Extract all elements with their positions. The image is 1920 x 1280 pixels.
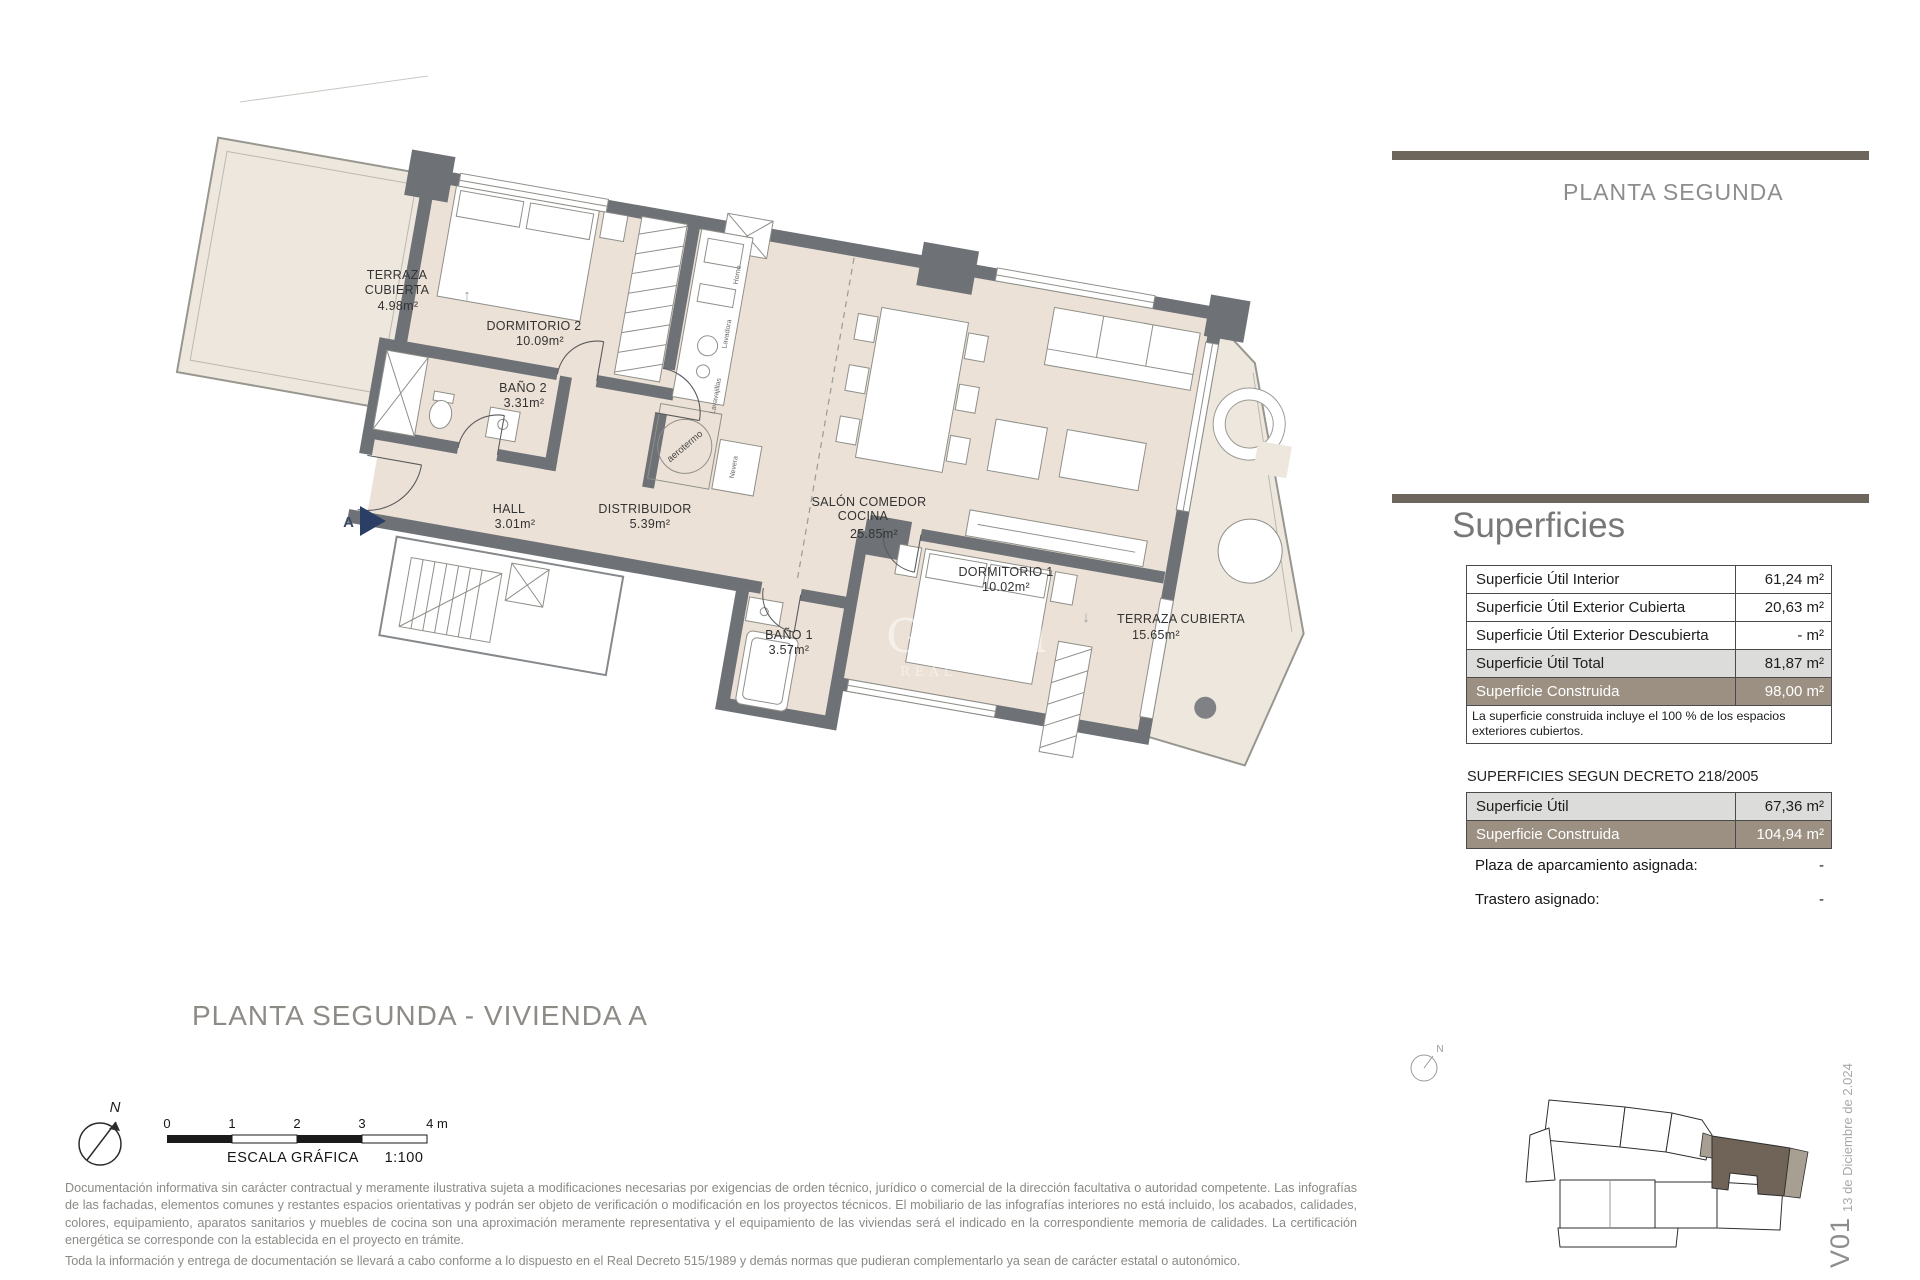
- row-value: 61,24 m²: [1735, 566, 1831, 593]
- room-label-hall: HALL: [493, 502, 525, 516]
- row-value: - m²: [1735, 622, 1831, 649]
- table-row: Superficie Construida 104,94 m²: [1467, 821, 1831, 848]
- plan-title: PLANTA SEGUNDA - VIVIENDA A: [192, 1000, 648, 1032]
- scale-tick-4: 4 m: [426, 1116, 448, 1131]
- scale-tick-2: 2: [293, 1116, 300, 1131]
- table-row-construida: Superficie Construida 98,00 m²: [1467, 678, 1831, 706]
- table-row-total: Superficie Útil Total 81,87 m²: [1467, 650, 1831, 678]
- assignment-label: Trastero asignado:: [1466, 891, 1819, 908]
- room-area-distribuidor: 5.39m²: [630, 517, 671, 531]
- table-note: La superficie construida incluye el 100 …: [1467, 706, 1831, 743]
- scale-bar: 0 1 2 3 4 m ESCALA GRÁFICA 1:100: [163, 1116, 447, 1166]
- superficies-table: Superficie Útil Interior 61,24 m² Superf…: [1466, 565, 1832, 744]
- superficies-rule: [1392, 494, 1869, 503]
- assignment-label: Plaza de aparcamiento asignada:: [1466, 857, 1819, 874]
- scale-tick-3: 3: [358, 1116, 365, 1131]
- watermark-line1: Global: [886, 609, 1049, 663]
- site-plan: N: [1411, 1044, 1808, 1247]
- entrance-letter: A: [343, 514, 354, 531]
- room-area-hall: 3.01m²: [495, 517, 536, 531]
- room-label-dorm2: DORMITORIO 2: [486, 319, 581, 333]
- page: aerotermo Horno Lavadora Lavavajillas Ne…: [0, 0, 1920, 1280]
- north-label: N: [110, 1099, 121, 1116]
- room-label-terraza2-2: CUBIERTA: [365, 283, 430, 297]
- room-area-bano2: 3.31m²: [504, 396, 545, 410]
- room-label-terraza2-1: TERRAZA: [367, 268, 428, 282]
- room-label-terraza1: TERRAZA CUBIERTA: [1117, 612, 1245, 626]
- disclaimer-paragraph-2: Toda la información y entrega de documen…: [65, 1254, 1357, 1268]
- room-area-salon: 25.85m²: [850, 527, 898, 541]
- scale-caption: ESCALA GRÁFICA: [227, 1149, 359, 1166]
- siteplan-north-label: N: [1436, 1044, 1443, 1055]
- decreto-title: SUPERFICIES SEGUN DECRETO 218/2005: [1467, 769, 1758, 785]
- row-label: Superficie Construida: [1467, 821, 1735, 848]
- row-label: Superficie Útil Interior: [1467, 566, 1735, 593]
- row-value: 67,36 m²: [1735, 793, 1831, 820]
- floorplan-geometry: aerotermo Horno Lavadora Lavavajillas Ne…: [136, 116, 1359, 804]
- scale-tick-1: 1: [228, 1116, 235, 1131]
- scale-ratio: 1:100: [385, 1150, 424, 1166]
- row-label: Superficie Útil: [1467, 793, 1735, 820]
- room-area-bano1: 3.57m²: [769, 643, 810, 657]
- table-row: Superficie Útil Exterior Cubierta 20,63 …: [1467, 594, 1831, 622]
- compass: N: [79, 1099, 121, 1165]
- row-value: 104,94 m²: [1735, 821, 1831, 848]
- row-value: 98,00 m²: [1735, 678, 1831, 705]
- row-label: Superficie Construida: [1467, 678, 1735, 705]
- window-arrow-down-icon: ↓: [1082, 609, 1090, 626]
- version-code: V01: [1825, 1217, 1855, 1268]
- row-value: 81,87 m²: [1735, 650, 1831, 677]
- room-area-dorm1: 10.02m²: [982, 580, 1030, 594]
- room-area-terraza2: 4.98m²: [378, 299, 419, 313]
- disclaimer-paragraph: Documentación informativa sin carácter c…: [65, 1180, 1357, 1249]
- plot-boundary-line: [240, 76, 428, 102]
- floor-title: PLANTA SEGUNDA: [1563, 179, 1784, 206]
- row-label: Superficie Útil Total: [1467, 650, 1735, 677]
- row-label: Superficie Útil Exterior Cubierta: [1467, 594, 1735, 621]
- watermark-line2: REAL: [900, 665, 957, 680]
- room-label-bano1: BAÑO 1: [765, 628, 813, 642]
- table-row: Superficie Útil 67,36 m²: [1467, 793, 1831, 821]
- scale-tick-0: 0: [163, 1116, 170, 1131]
- room-label-salon-2: COCINA: [838, 509, 889, 523]
- assignment-value: -: [1819, 891, 1830, 908]
- room-area-terraza1: 15.65m²: [1132, 628, 1180, 642]
- assignment-row-storage: Trastero asignado: -: [1466, 891, 1830, 908]
- superficies-title: Superficies: [1452, 506, 1625, 546]
- window-arrow-up-icon: ↑: [463, 287, 471, 304]
- row-label: Superficie Útil Exterior Descubierta: [1467, 622, 1735, 649]
- row-value: 20,63 m²: [1735, 594, 1831, 621]
- version-date: 13 de Diciembre de 2.024: [1840, 1063, 1855, 1212]
- room-label-salon-1: SALÓN COMEDOR: [811, 494, 926, 509]
- room-area-dorm2: 10.09m²: [516, 334, 564, 348]
- decreto-table: Superficie Útil 67,36 m² Superficie Cons…: [1466, 792, 1832, 849]
- table-row: Superficie Útil Exterior Descubierta - m…: [1467, 622, 1831, 650]
- assignment-value: -: [1819, 857, 1830, 874]
- header-rule: [1392, 151, 1869, 160]
- room-label-distribuidor: DISTRIBUIDOR: [598, 502, 691, 516]
- room-label-bano2: BAÑO 2: [499, 381, 547, 395]
- room-label-dorm1: DORMITORIO 1: [958, 565, 1053, 579]
- table-row: Superficie Útil Interior 61,24 m²: [1467, 566, 1831, 594]
- assignment-row-parking: Plaza de aparcamiento asignada: -: [1466, 857, 1830, 874]
